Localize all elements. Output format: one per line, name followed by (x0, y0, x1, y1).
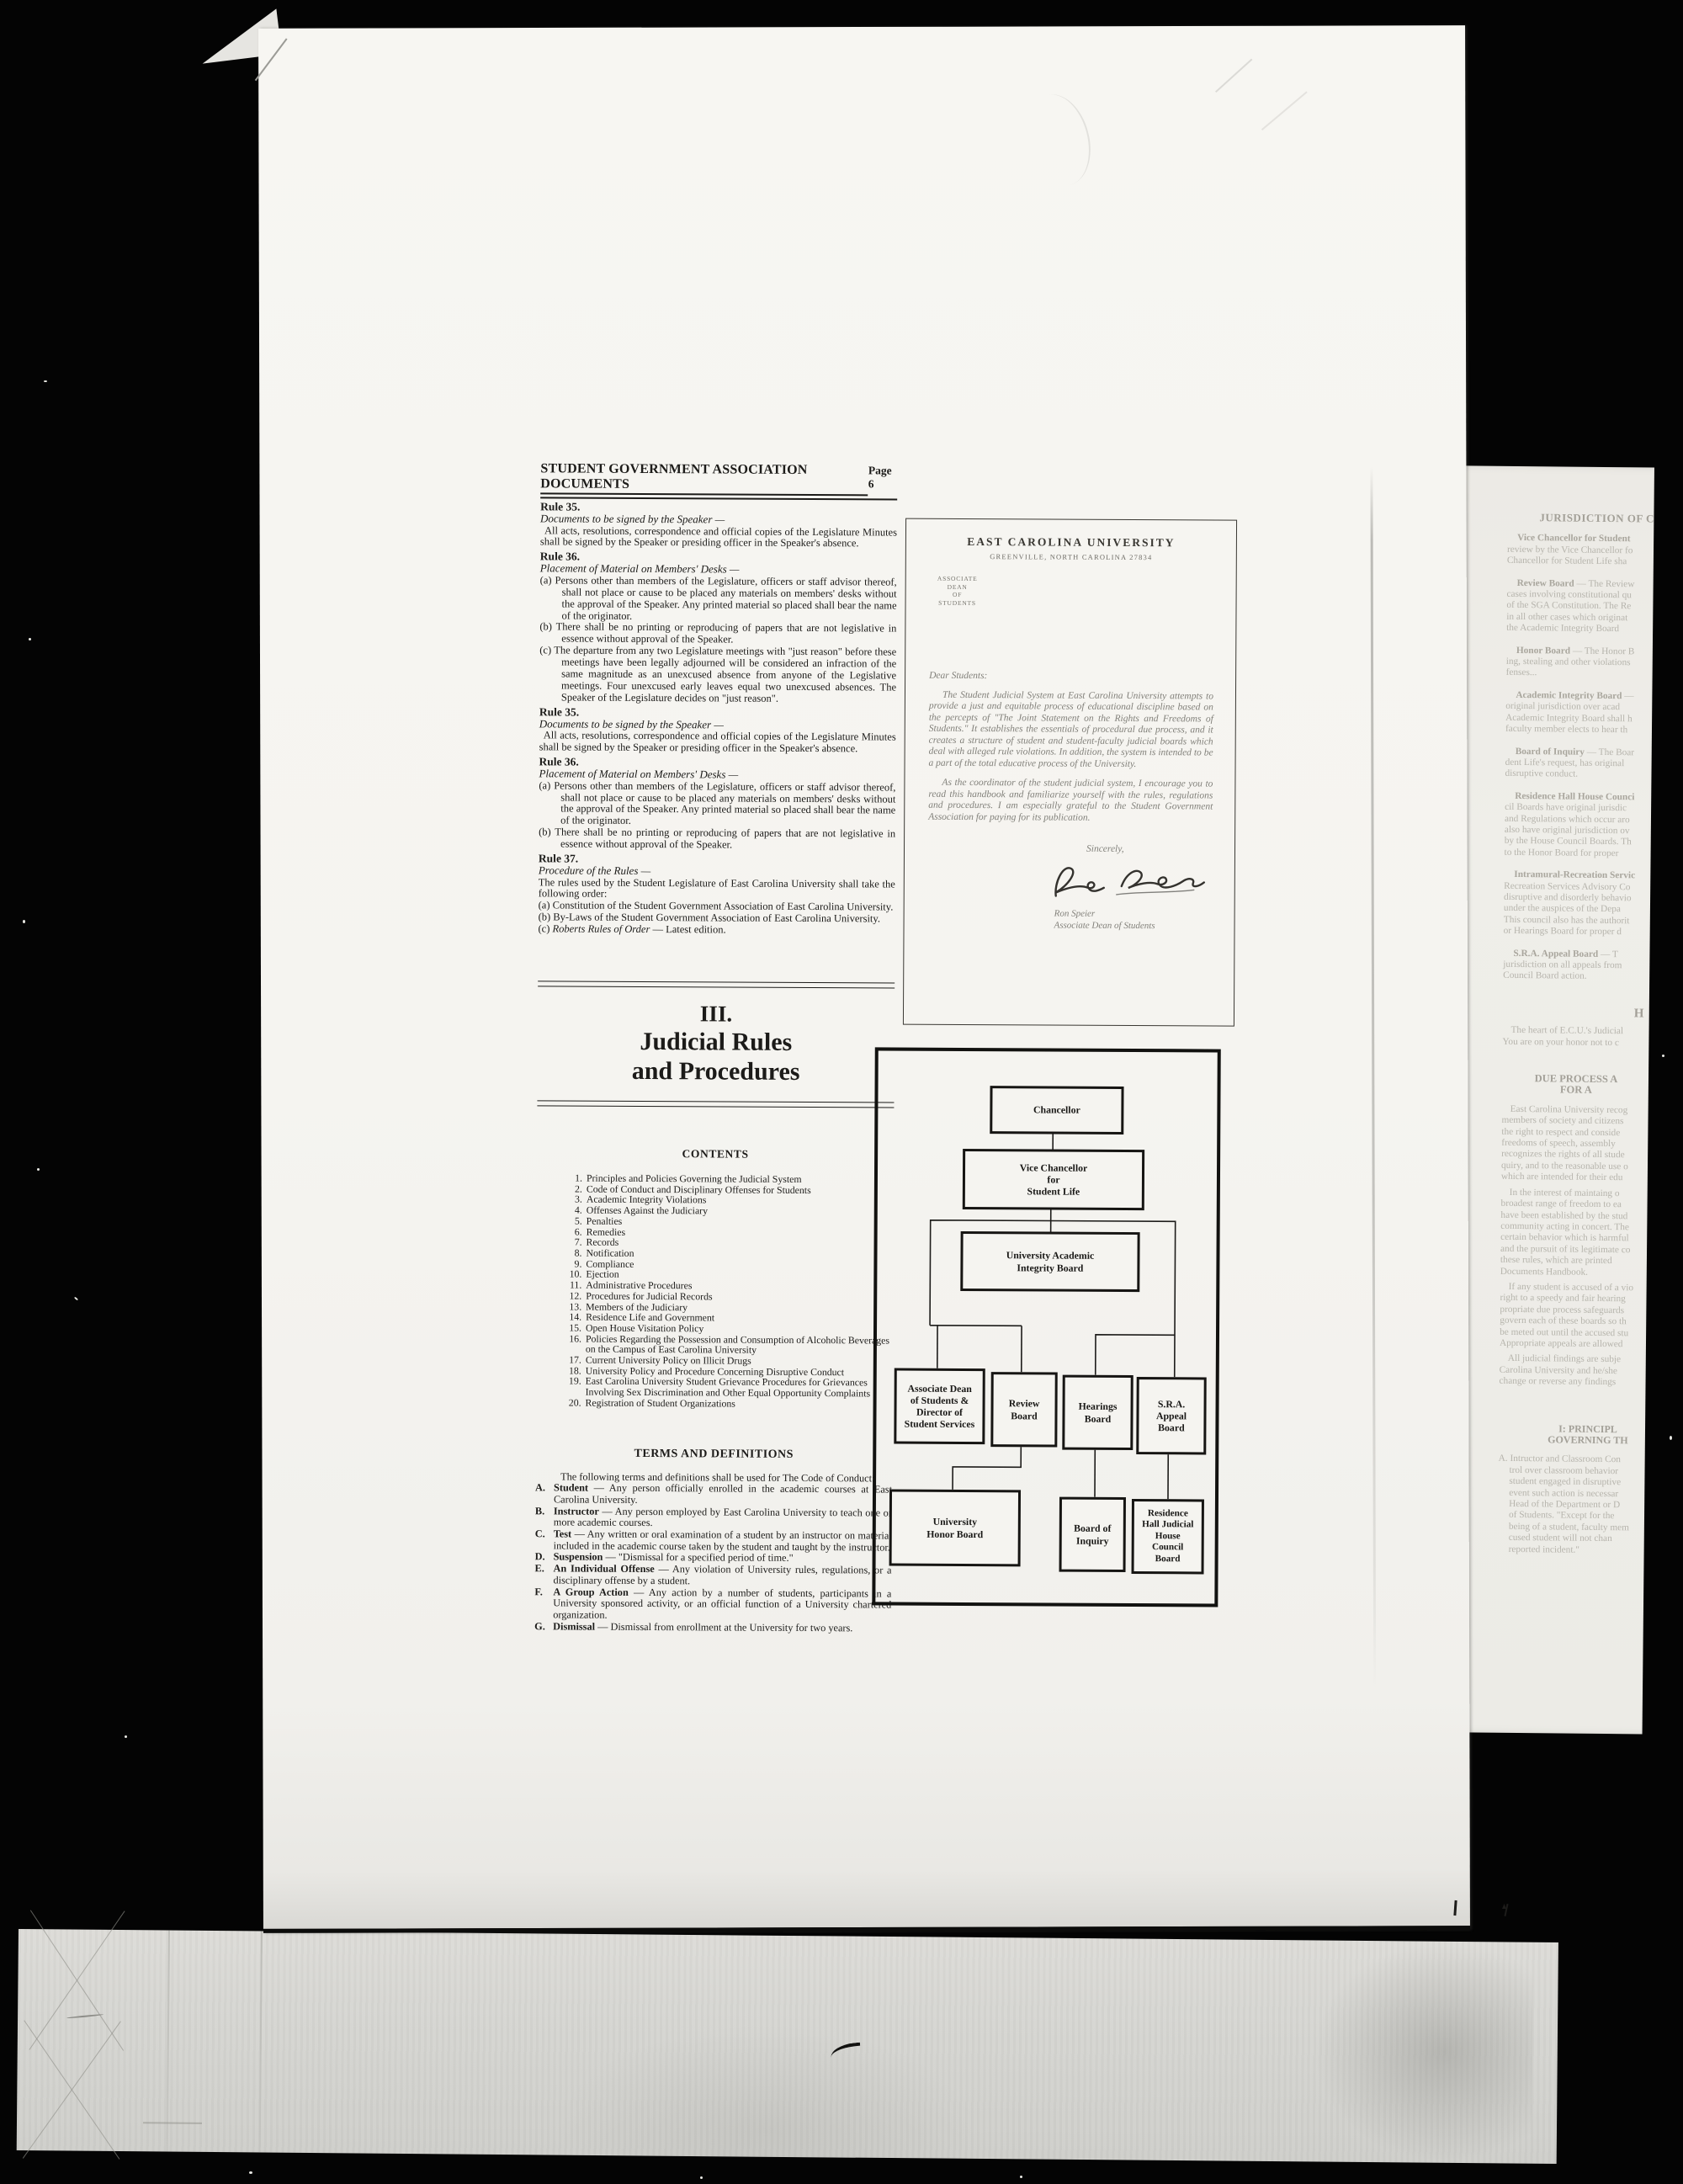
backing-strip (17, 1929, 1558, 2164)
section-numeral: III. (538, 1000, 895, 1028)
jurisdiction-paragraph: Intramural-Recreation Servic Recreation … (1504, 869, 1653, 938)
dust-speck (1670, 1436, 1672, 1440)
pencil-x-mark (23, 2021, 121, 2158)
section-rule (538, 980, 895, 988)
dust-speck (23, 920, 25, 923)
contents-list: 1.Principles and Policies Governing the … (536, 1172, 894, 1410)
dust-speck (44, 380, 47, 382)
dust-speck (125, 1735, 127, 1738)
right-page-text-column: JURISDICTION OF C Vice Chancellor for St… (1498, 512, 1654, 1557)
jurisdiction-paragraph: Review Board — The Review cases involvin… (1506, 577, 1654, 635)
jurisdiction-paragraph: Academic Integrity Board — original juri… (1505, 690, 1654, 736)
contents-item: 20.Registration of Student Organizations (565, 1397, 893, 1410)
terms-heading: TERMS AND DEFINITIONS (535, 1447, 892, 1462)
letter-closing: Sincerely, (1086, 844, 1213, 856)
org-node-hearings-board: Hearings Board (1062, 1375, 1133, 1450)
rule-paragraph: All acts, resolutions, correspondence an… (540, 525, 897, 550)
letter-paragraph: As the coordinator of the student judici… (928, 778, 1213, 825)
page-title: STUDENT GOVERNMENT ASSOCIATION DOCUMENTS (540, 461, 868, 496)
pencil-mark (66, 2014, 104, 2019)
dust-speck (249, 2171, 252, 2174)
signer-title: Associate Dean of Students (1054, 919, 1213, 932)
rule-list-item: (b) There shall be no printing or reprod… (539, 622, 896, 647)
org-node-board-of-inquiry: Board of Inquiry (1059, 1497, 1126, 1572)
strip-shading (555, 2022, 977, 2159)
jurisdiction-paragraph: Vice Chancellor for Student review by th… (1507, 533, 1654, 568)
due-process-paragraph: In the interest of maintaing o broadest … (1500, 1188, 1649, 1279)
dust-speck (1662, 1055, 1664, 1057)
jurisdiction-paragraph: Board of Inquiry — The Boar dent Life's … (1505, 746, 1653, 781)
dust-speck (37, 1168, 40, 1171)
strip-shading (1313, 1940, 1533, 2163)
document-page: STUDENT GOVERNMENT ASSOCIATION DOCUMENTS… (258, 25, 1470, 1933)
rule-list-item: (a) Persons other than members of the Le… (539, 780, 895, 829)
org-node-residence-hall-board: Residence Hall Judicial House Council Bo… (1132, 1499, 1204, 1574)
rule-list-item: (b) There shall be no printing or reprod… (539, 827, 895, 853)
contents-heading: CONTENTS (537, 1146, 894, 1161)
org-node-sra-appeal-board: S.R.A. Appeal Board (1136, 1377, 1206, 1454)
dust-speck (700, 2176, 703, 2179)
term-definition: E.An Individual Offense — Any violation … (534, 1563, 891, 1588)
rule-list-item: (a) Persons other than members of the Le… (539, 575, 896, 624)
jurisdiction-paragraph: Honor Board — The Honor B ing, stealing … (1506, 646, 1654, 681)
section-heading-block: III. Judicial Rules and Procedures (537, 980, 895, 1108)
dust-speck (1020, 2176, 1022, 2178)
due-process-paragraph: If any student is accused of a vio right… (1500, 1282, 1648, 1351)
jurisdiction-paragraph: Residence Hall House Counci cil Boards h… (1505, 791, 1654, 860)
term-definition: A.Student — Any person officially enroll… (535, 1483, 892, 1508)
honor-section-text: The heart of E.C.U.'s Judicial You are o… (1502, 1025, 1650, 1049)
term-definition: F.A Group Action — Any action by a numbe… (534, 1586, 891, 1623)
org-node-review-board: Review Board (990, 1372, 1057, 1447)
term-definition: C.Test — Any written or oral examination… (535, 1528, 892, 1554)
dust-speck (74, 1297, 78, 1301)
strip-seam (259, 1932, 263, 2153)
pencil-x-mark (29, 1910, 125, 2049)
running-header: STUDENT GOVERNMENT ASSOCIATION DOCUMENTS… (540, 461, 897, 496)
spacer (537, 1085, 894, 1102)
org-node-associate-dean: Associate Dean of Students & Director of… (894, 1368, 985, 1445)
letter-body: Dear Students: The Student Judicial Syst… (928, 671, 1214, 932)
section-title: Judicial Rules (538, 1026, 895, 1057)
signature-script (1044, 857, 1213, 908)
letter-salutation: Dear Students: (929, 671, 1213, 683)
microfilm-scan-frame: JURISDICTION OF C Vice Chancellor for St… (0, 0, 1683, 2184)
dust-speck (29, 638, 31, 640)
due-process-paragraph: All judicial findings are subje Carolina… (1499, 1353, 1647, 1389)
rule-list-item: (c) The departure from any two Legislatu… (539, 646, 896, 706)
left-text-column: STUDENT GOVERNMENT ASSOCIATION DOCUMENTS… (534, 461, 897, 1634)
honor-section-header: H (1634, 1008, 1651, 1020)
contents-item: 16.Policies Regarding the Possession and… (565, 1333, 893, 1356)
jurisdiction-header: JURISDICTION OF C (1539, 512, 1654, 524)
org-node-chancellor: Chancellor (990, 1086, 1123, 1135)
org-node-vice-chancellor: Vice Chancellor for Student Life (963, 1149, 1144, 1210)
term-definition: G.Dismissal — Dismissal from enrollment … (534, 1621, 891, 1634)
pencil-mark (143, 2122, 202, 2123)
rule-paragraph: The rules used by the Student Legislatur… (539, 877, 895, 902)
strip-seam (167, 1931, 170, 2152)
section-title: and Procedures (538, 1055, 895, 1087)
page-number: Page 6 (868, 464, 898, 491)
rule-list-item: (c) Roberts Rules of Order — Latest edit… (538, 923, 895, 937)
principles-text: A. Intructor and Classroom Con trol over… (1498, 1453, 1647, 1556)
section-rule (537, 1100, 894, 1108)
term-definition: B.Instructor — Any person employed by Ea… (535, 1506, 892, 1531)
signer-name: Ron Speier (1054, 907, 1213, 920)
letter-paragraph: The Student Judicial System at East Caro… (929, 689, 1213, 770)
principles-header: I: PRINCIPL GOVERNING TH (1521, 1423, 1654, 1447)
printed-content: STUDENT GOVERNMENT ASSOCIATION DOCUMENTS… (252, 26, 1468, 1932)
org-node-integrity-board: University Academic Integrity Board (960, 1231, 1139, 1292)
jurisdiction-paragraph: S.R.A. Appeal Board — T jurisdiction on … (1503, 948, 1651, 983)
org-node-honor-board: University Honor Board (889, 1490, 1021, 1567)
rule-paragraph: All acts, resolutions, correspondence an… (539, 731, 896, 756)
due-process-paragraph: East Carolina University recog members o… (1501, 1104, 1650, 1185)
letterhead-university: EAST CAROLINA UNIVERSITY (906, 535, 1236, 550)
judicial-system-org-chart: Chancellor Vice Chancellor for Student L… (872, 1047, 1220, 1607)
letterhead-location: GREENVILLE, NORTH CAROLINA 27834 (906, 552, 1236, 562)
letterhead-letter: EAST CAROLINA UNIVERSITY GREENVILLE, NOR… (903, 518, 1237, 1027)
due-process-header: DUE PROCESS A FOR A (1502, 1073, 1650, 1097)
letterhead-office: ASSOCIATE DEAN OF STUDENTS (926, 575, 989, 607)
contents-item: 19.East Carolina University Student Grie… (565, 1376, 893, 1399)
